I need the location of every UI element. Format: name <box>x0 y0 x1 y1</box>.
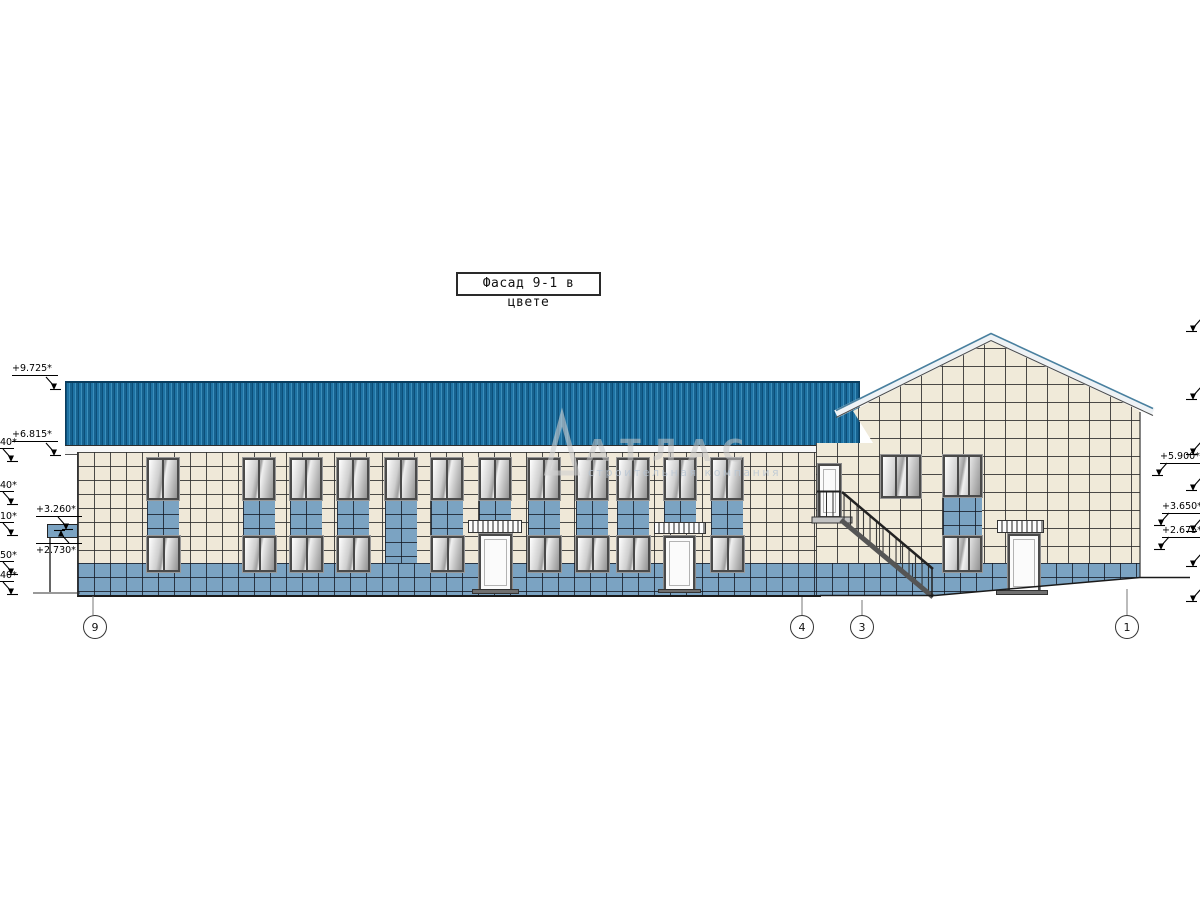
watermark-name: АТЛАС <box>586 434 755 469</box>
elevation-arrow-icon <box>1186 318 1200 333</box>
accent-strip <box>431 500 463 537</box>
door-step <box>658 589 701 593</box>
elevation-arrow-icon <box>2 448 18 463</box>
accent-strip <box>576 500 608 537</box>
window-upper <box>385 458 417 500</box>
door-step <box>472 589 519 594</box>
window-gable-upper <box>881 455 921 498</box>
elevation-arrow-icon <box>1154 536 1170 551</box>
window-lower <box>711 536 744 572</box>
window-upper <box>431 458 463 500</box>
window-gable-upper <box>943 455 982 497</box>
accent-strip <box>243 500 275 537</box>
elevation-arrow-icon <box>1186 477 1200 492</box>
door-step <box>996 590 1048 595</box>
elevation-arrow-icon <box>1186 386 1200 401</box>
accent-strip <box>711 500 743 537</box>
door-canopy <box>468 520 522 533</box>
window-upper <box>243 458 275 500</box>
stair-landing-door <box>818 464 841 518</box>
accent-strip <box>290 500 322 537</box>
window-upper <box>290 458 322 500</box>
elevation-arrow-icon <box>1186 518 1200 533</box>
window-upper <box>147 458 179 500</box>
window-lower <box>290 536 323 572</box>
elevation-arrow-icon <box>1186 588 1200 603</box>
window-gable-lower <box>943 536 982 572</box>
elevation-marker: +6.815* <box>12 429 58 442</box>
accent-strip <box>943 497 982 537</box>
accent-strip <box>479 500 511 521</box>
axis-bubble: 1 <box>1115 615 1139 639</box>
window-lower <box>337 536 370 572</box>
window-lower <box>576 536 609 572</box>
entrance-door <box>664 536 695 591</box>
entrance-door <box>479 534 512 591</box>
elevation-arrow-icon <box>45 442 61 457</box>
window-upper <box>528 458 560 500</box>
facade-drawing: Фасад 9-1 в цвете <box>0 0 1200 900</box>
window-lower <box>431 536 464 572</box>
elevation-arrow-icon <box>45 376 61 391</box>
elevation-arrow-icon <box>1186 441 1200 456</box>
axis-bubble: 3 <box>850 615 874 639</box>
elevation-marker: +2.730* <box>36 543 82 556</box>
elevation-marker: +9.725* <box>12 363 58 376</box>
accent-strip <box>664 500 696 523</box>
window-lower <box>147 536 180 572</box>
window-lower <box>528 536 561 572</box>
elevation-arrow-icon <box>1152 462 1168 477</box>
watermark-subtitle: строительная компания <box>588 466 781 479</box>
accent-strip <box>617 500 649 537</box>
accent-strip <box>337 500 369 537</box>
axis-bubble: 4 <box>790 615 814 639</box>
window-upper <box>479 458 511 500</box>
elevation-arrow-icon <box>2 581 18 596</box>
door-canopy <box>997 520 1044 533</box>
accent-strip <box>147 500 179 537</box>
elevation-arrow-icon <box>2 491 18 506</box>
elevation-arrow-icon <box>2 522 18 537</box>
window-lower <box>617 536 650 572</box>
entrance-door <box>1008 534 1040 592</box>
drawing-title: Фасад 9-1 в цвете <box>456 272 601 296</box>
axis-bubble: 9 <box>83 615 107 639</box>
door-canopy <box>654 522 706 534</box>
elevation-arrow-up-icon <box>54 529 70 544</box>
accent-strip <box>385 500 417 563</box>
elevation-arrow-icon <box>1186 553 1200 568</box>
window-lower <box>243 536 276 572</box>
accent-strip <box>528 500 560 537</box>
window-upper <box>337 458 369 500</box>
